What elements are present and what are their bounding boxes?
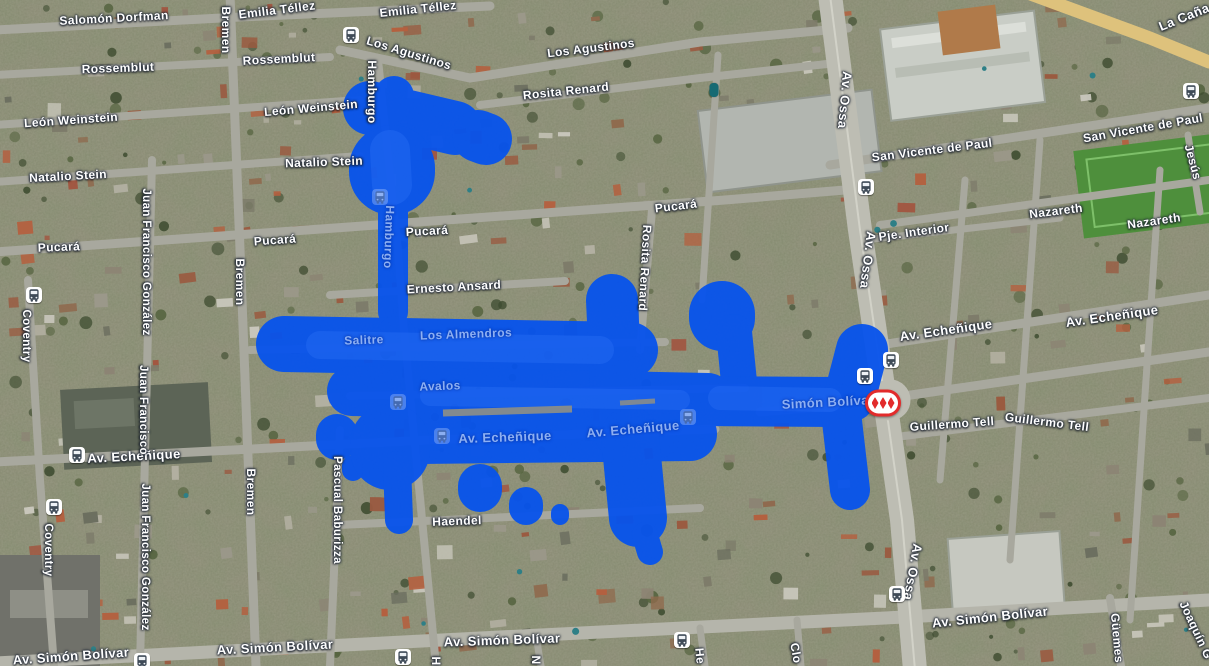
bus-stop-icon[interactable] (434, 428, 450, 444)
bus-stop-icon[interactable] (26, 287, 42, 303)
bus-stop-icon[interactable] (680, 409, 696, 425)
bus-stop-icon[interactable] (343, 27, 359, 43)
satellite-map-viewport[interactable]: Salomón DorfmanEmilia TéllezEmilia Télle… (0, 0, 1209, 666)
poi-teal-icon[interactable] (710, 83, 719, 97)
bus-stop-icon[interactable] (674, 632, 690, 648)
metro-station-icon[interactable] (865, 390, 901, 417)
metro-logo-diamond (888, 397, 895, 409)
bus-stop-icon[interactable] (883, 352, 899, 368)
metro-logo-diamond (872, 397, 879, 409)
bus-stop-icon[interactable] (857, 368, 873, 384)
overlay-gap-sliver (443, 409, 572, 413)
route-overlay (0, 0, 1209, 666)
bus-stop-icon[interactable] (372, 189, 388, 205)
bus-stop-icon[interactable] (46, 499, 62, 515)
bus-stop-icon[interactable] (889, 586, 905, 602)
bus-stop-icon[interactable] (858, 179, 874, 195)
bus-stop-icon[interactable] (395, 649, 411, 665)
bus-stop-icon[interactable] (134, 653, 150, 666)
bus-stop-icon[interactable] (1183, 83, 1199, 99)
bus-stop-icon[interactable] (69, 447, 85, 463)
metro-logo-diamond (880, 397, 887, 409)
bus-stop-icon[interactable] (390, 394, 406, 410)
overlay-gap-sliver (620, 401, 655, 403)
